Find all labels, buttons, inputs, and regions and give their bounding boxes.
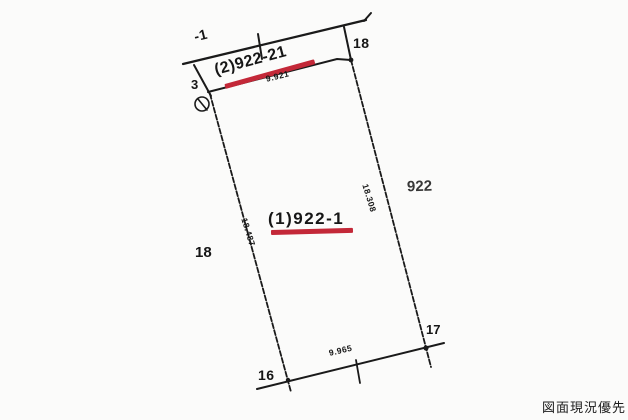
boundary-point-17: 17 bbox=[426, 323, 440, 336]
main-parcel-label: (1)922-1 bbox=[268, 210, 344, 227]
survey-plan-page: -1 18 3 (2)922-21 9.921 (1)922-1 18.487 … bbox=[0, 0, 628, 420]
top-right-connector-line bbox=[344, 27, 351, 60]
corner-point-bottom-left bbox=[286, 378, 290, 382]
survey-point-slash bbox=[198, 99, 207, 110]
parcel-right-edge bbox=[351, 60, 431, 367]
boundary-point-16: 16 bbox=[258, 368, 275, 382]
road-boundary-end-hook bbox=[364, 13, 371, 21]
corner-point-top-right bbox=[349, 58, 354, 63]
drawing-priority-stamp: 図面現況優先 bbox=[542, 397, 626, 416]
neighbor-lot-922-label: 922 bbox=[407, 179, 433, 195]
corner-point-bottom-right bbox=[423, 345, 428, 350]
boundary-point-18-left: 18 bbox=[195, 245, 212, 260]
boundary-point-3: 3 bbox=[191, 78, 198, 91]
boundary-point-18-top-right: 18 bbox=[353, 36, 370, 50]
